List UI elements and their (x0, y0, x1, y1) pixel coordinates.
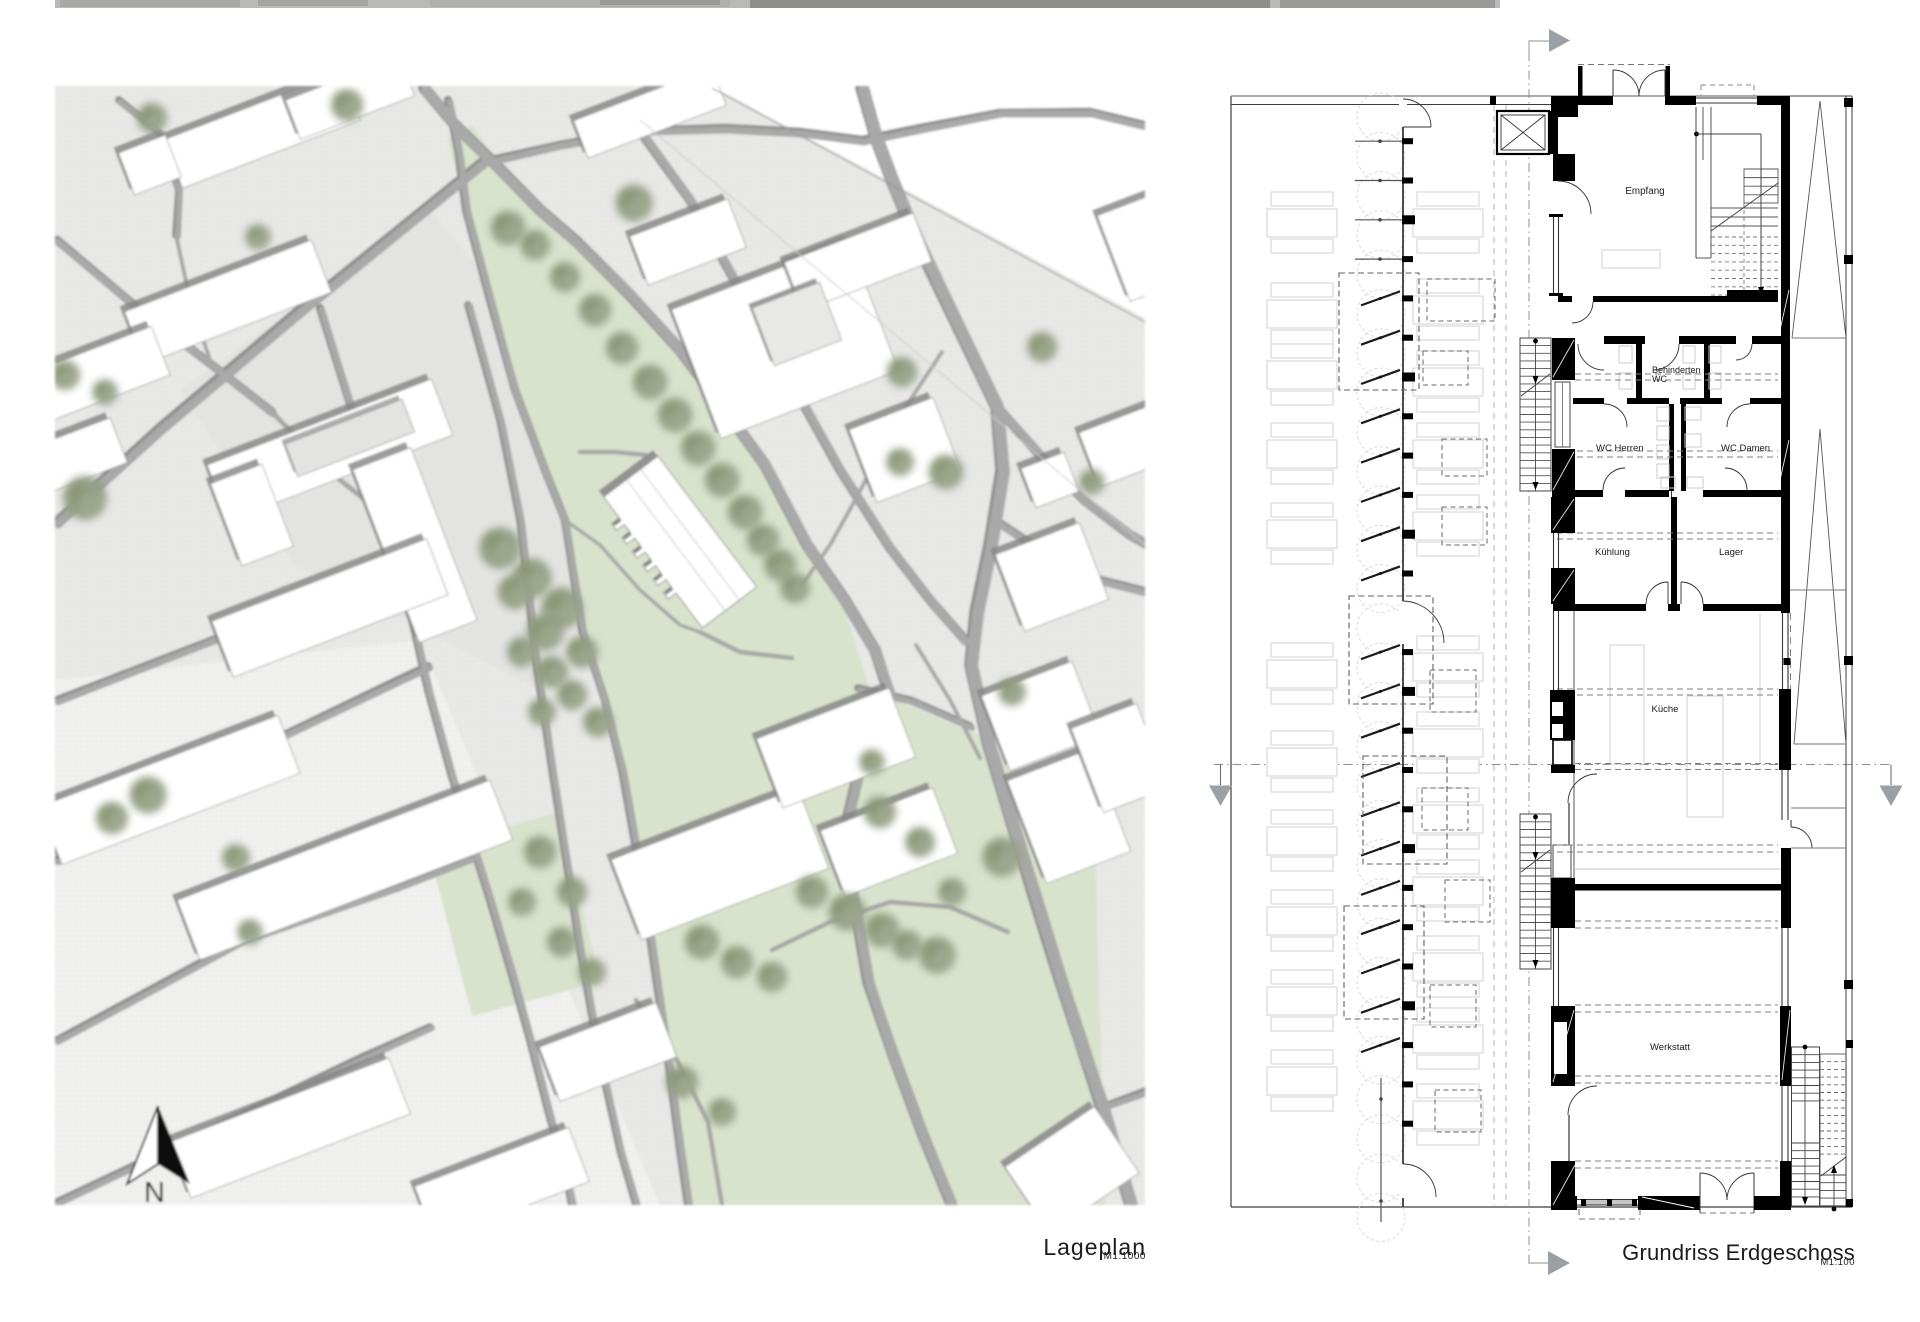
svg-text:N: N (144, 1177, 165, 1209)
svg-text:Kühlung: Kühlung (1595, 547, 1630, 558)
svg-text:WC: WC (1652, 374, 1667, 384)
svg-text:Werkstatt: Werkstatt (1650, 1042, 1690, 1053)
svg-text:Küche: Küche (1652, 704, 1679, 715)
svg-text:WC Damen: WC Damen (1721, 443, 1770, 454)
svg-text:WC Herren: WC Herren (1596, 443, 1644, 454)
svg-text:Lager: Lager (1719, 547, 1743, 558)
svg-text:Empfang: Empfang (1625, 186, 1664, 197)
